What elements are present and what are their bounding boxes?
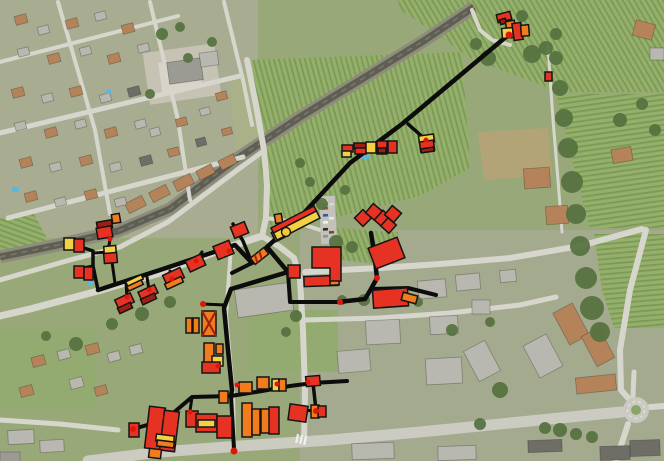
network-pipe[interactable] bbox=[203, 304, 225, 305]
plant-node[interactable] bbox=[282, 228, 291, 237]
building-marker[interactable] bbox=[186, 318, 192, 333]
tree bbox=[41, 331, 51, 341]
tree bbox=[649, 124, 661, 136]
tree bbox=[553, 423, 567, 437]
building-marker[interactable] bbox=[157, 440, 175, 448]
connection-node[interactable] bbox=[125, 295, 130, 300]
background-building bbox=[600, 445, 630, 460]
connection-node[interactable] bbox=[231, 448, 238, 455]
connection-node[interactable] bbox=[275, 382, 280, 387]
background-building bbox=[455, 273, 480, 291]
tree bbox=[550, 28, 562, 40]
tree bbox=[561, 171, 583, 193]
tree bbox=[295, 158, 305, 168]
tree bbox=[305, 177, 315, 187]
tree bbox=[183, 53, 193, 63]
tree bbox=[175, 22, 185, 32]
background-building bbox=[0, 452, 20, 461]
parked-car bbox=[329, 217, 334, 220]
swimming-pool bbox=[12, 187, 19, 192]
building-marker[interactable] bbox=[279, 379, 286, 391]
building-marker[interactable] bbox=[366, 142, 376, 153]
tree bbox=[470, 38, 482, 50]
tree bbox=[156, 28, 168, 40]
connection-node[interactable] bbox=[424, 138, 429, 143]
swimming-pool bbox=[88, 281, 94, 285]
tree bbox=[636, 98, 648, 110]
building-marker[interactable] bbox=[342, 151, 351, 157]
background-building bbox=[199, 51, 219, 67]
tree bbox=[290, 310, 302, 322]
tree bbox=[135, 307, 149, 321]
background-building bbox=[352, 442, 395, 459]
building-marker[interactable] bbox=[288, 404, 308, 422]
connection-node[interactable] bbox=[200, 301, 206, 307]
background-building bbox=[611, 146, 633, 163]
background-building bbox=[8, 429, 35, 444]
tree bbox=[539, 422, 551, 434]
building-marker-hatched[interactable] bbox=[202, 311, 216, 336]
map-canvas[interactable] bbox=[0, 0, 664, 461]
background-building bbox=[545, 205, 568, 224]
connection-node[interactable] bbox=[147, 288, 152, 293]
background-building bbox=[630, 439, 661, 456]
tree bbox=[492, 382, 508, 398]
tree bbox=[523, 45, 541, 63]
tree bbox=[69, 337, 83, 351]
connection-node[interactable] bbox=[306, 380, 311, 385]
background-building bbox=[417, 279, 446, 299]
building-marker[interactable] bbox=[252, 409, 260, 435]
building-marker[interactable] bbox=[545, 72, 552, 81]
parked-car bbox=[323, 235, 328, 238]
tree bbox=[575, 267, 597, 289]
connection-node[interactable] bbox=[130, 426, 136, 432]
road bbox=[650, 406, 664, 407]
tree bbox=[552, 80, 568, 96]
building-marker[interactable] bbox=[148, 448, 161, 458]
building-marker[interactable] bbox=[111, 213, 120, 223]
tree bbox=[590, 322, 610, 342]
tree bbox=[346, 241, 358, 253]
parked-car bbox=[323, 214, 328, 217]
roundabout-island bbox=[631, 405, 641, 415]
background-building bbox=[438, 445, 476, 460]
building-marker[interactable] bbox=[355, 148, 366, 154]
connection-node[interactable] bbox=[188, 410, 193, 415]
connection-node[interactable] bbox=[194, 259, 199, 264]
background-building bbox=[425, 357, 462, 385]
building-marker[interactable] bbox=[318, 406, 326, 417]
building-marker[interactable] bbox=[84, 267, 93, 280]
background-building bbox=[365, 319, 400, 345]
building-marker[interactable] bbox=[239, 382, 252, 393]
swimming-pool bbox=[106, 90, 111, 94]
connection-node[interactable] bbox=[170, 277, 175, 282]
background-building bbox=[40, 439, 65, 452]
background-building bbox=[500, 269, 517, 282]
tree bbox=[485, 317, 495, 327]
tree bbox=[555, 109, 573, 127]
building-marker[interactable] bbox=[521, 25, 530, 37]
parked-car bbox=[323, 221, 328, 224]
tree bbox=[570, 236, 590, 256]
background-building bbox=[472, 300, 490, 314]
building-marker[interactable] bbox=[74, 239, 84, 252]
tree bbox=[539, 41, 553, 55]
building-marker[interactable] bbox=[217, 416, 232, 438]
background-building bbox=[528, 439, 562, 452]
tree bbox=[446, 324, 458, 336]
tree bbox=[613, 113, 627, 127]
tree bbox=[145, 89, 155, 99]
building-marker[interactable] bbox=[242, 403, 252, 437]
tree bbox=[516, 10, 528, 22]
building-marker[interactable] bbox=[388, 141, 397, 153]
tree bbox=[558, 138, 578, 158]
tree bbox=[570, 428, 582, 440]
connection-node[interactable] bbox=[374, 275, 380, 281]
connection-node[interactable] bbox=[337, 299, 343, 305]
tree bbox=[566, 204, 586, 224]
parked-car bbox=[323, 228, 328, 231]
building-marker[interactable] bbox=[257, 377, 269, 389]
tree bbox=[474, 418, 486, 430]
building-marker[interactable] bbox=[378, 148, 386, 153]
connection-node[interactable] bbox=[216, 364, 221, 369]
building-marker[interactable] bbox=[269, 407, 279, 434]
building-marker[interactable] bbox=[219, 391, 228, 403]
building-marker[interactable] bbox=[193, 318, 199, 333]
background-building bbox=[650, 48, 664, 60]
building-marker[interactable] bbox=[288, 265, 300, 278]
connection-node[interactable] bbox=[313, 408, 319, 414]
connection-node[interactable] bbox=[506, 32, 513, 39]
parked-car bbox=[329, 203, 334, 206]
road bbox=[633, 372, 634, 396]
background-building bbox=[523, 167, 550, 189]
building-marker[interactable] bbox=[198, 420, 215, 427]
background-building bbox=[337, 349, 371, 374]
aerial-map-view[interactable] bbox=[0, 0, 664, 461]
tree bbox=[549, 51, 563, 65]
building-marker[interactable] bbox=[104, 252, 118, 263]
building-marker[interactable] bbox=[216, 344, 223, 354]
connection-node[interactable] bbox=[227, 249, 232, 254]
parked-car bbox=[329, 231, 334, 234]
tree bbox=[340, 185, 350, 195]
connection-node[interactable] bbox=[108, 237, 113, 242]
tree bbox=[586, 431, 598, 443]
building-marker[interactable] bbox=[421, 147, 434, 153]
tree bbox=[207, 37, 217, 47]
tree bbox=[580, 296, 604, 320]
tree bbox=[164, 296, 176, 308]
tree bbox=[281, 327, 291, 337]
network-pipe[interactable] bbox=[190, 397, 192, 411]
tree bbox=[106, 318, 118, 330]
connection-node[interactable] bbox=[235, 383, 240, 388]
building-marker[interactable] bbox=[74, 266, 84, 278]
